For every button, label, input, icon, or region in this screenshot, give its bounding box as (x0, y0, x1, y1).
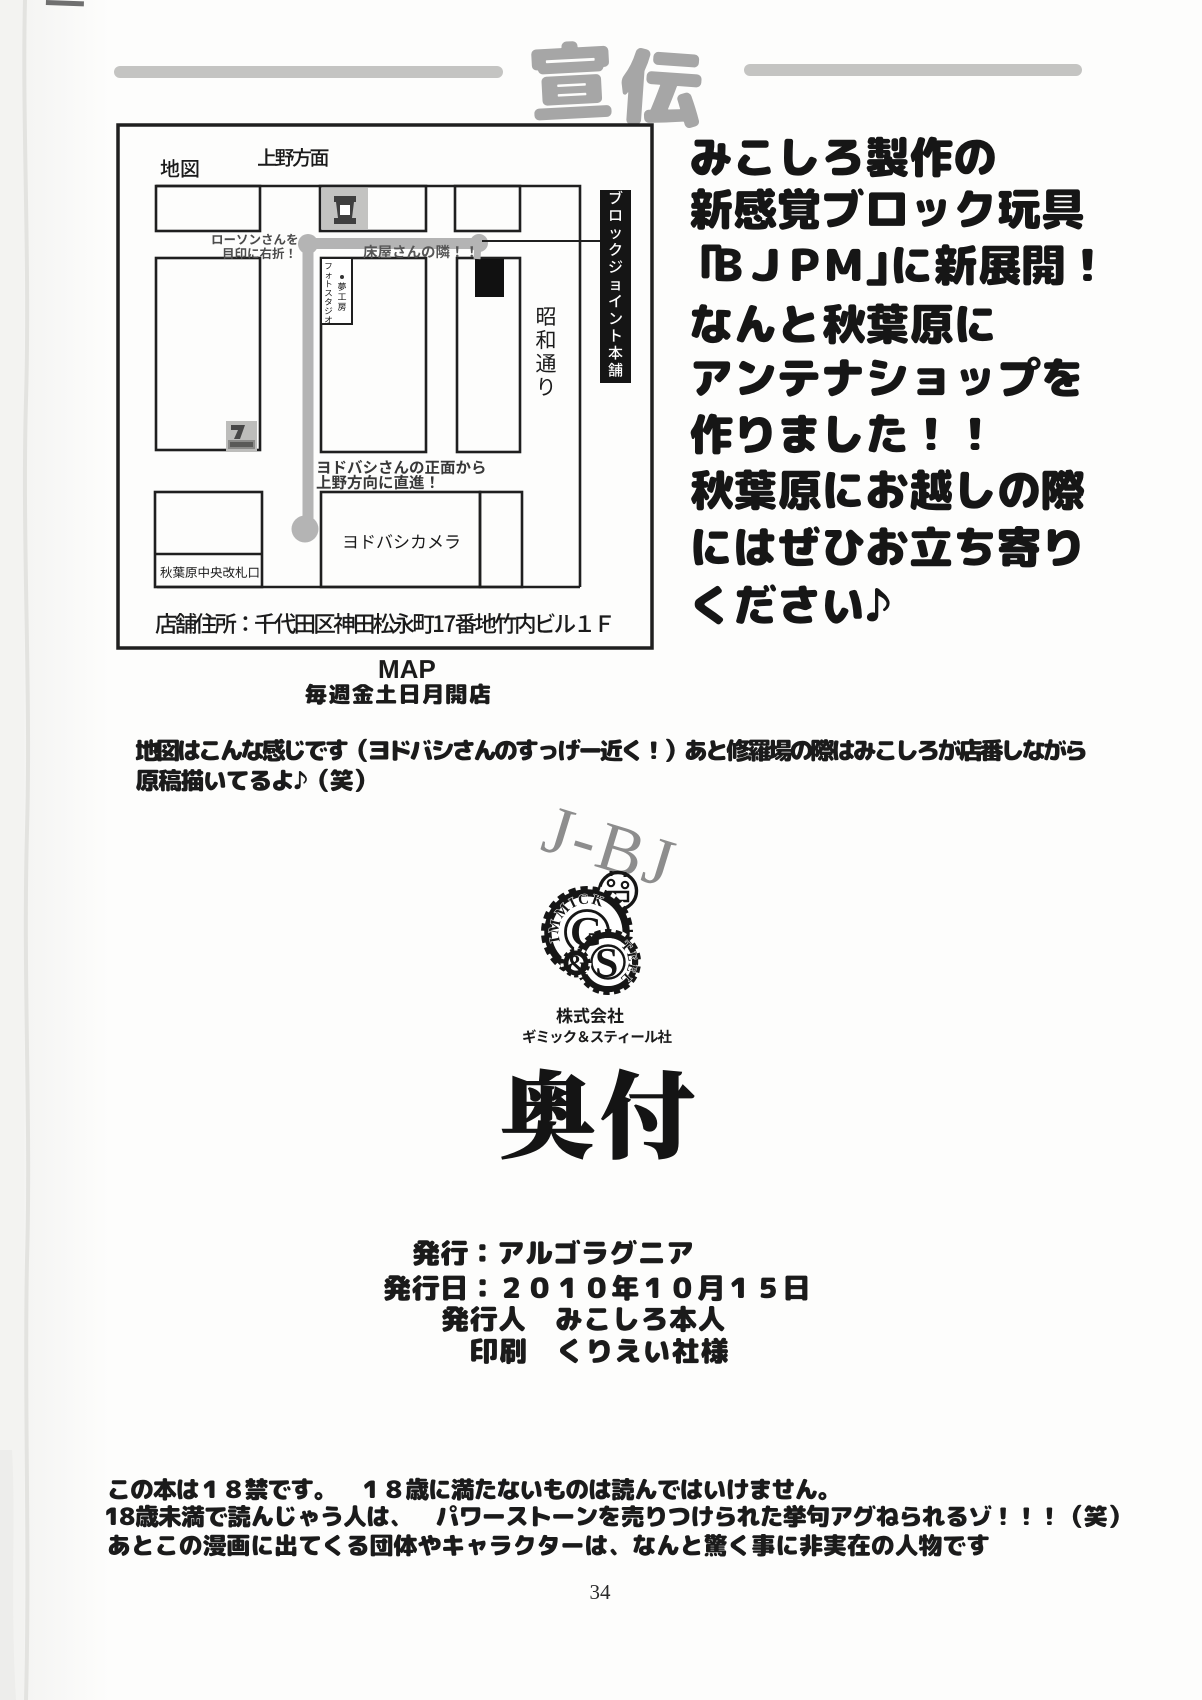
svg-text:S: S (595, 941, 618, 987)
svg-text:34: 34 (590, 1580, 612, 1604)
svg-text:&: & (566, 950, 588, 979)
